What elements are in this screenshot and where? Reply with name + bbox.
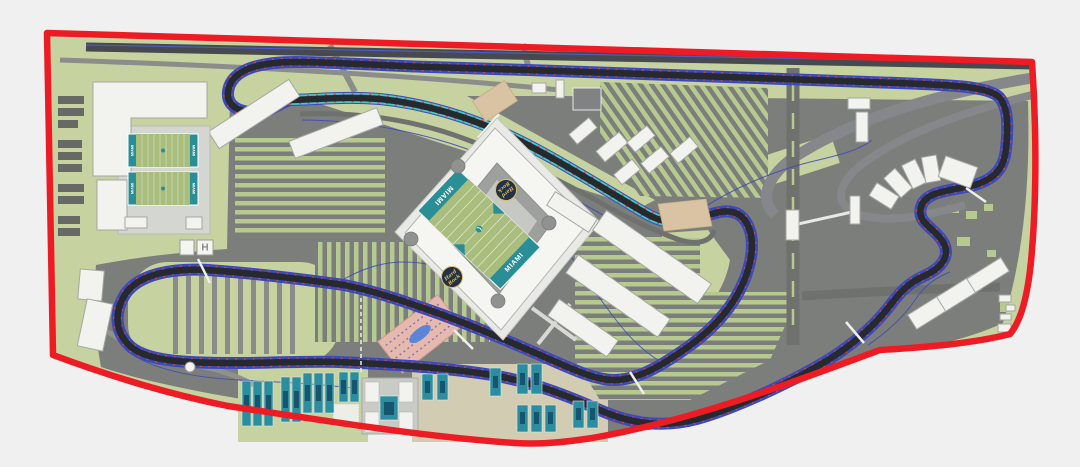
- building: [848, 98, 870, 109]
- training-facility: MIAMI MIAMI MIAMI MIAMI: [93, 82, 210, 234]
- building: [556, 80, 564, 98]
- helipad: H: [180, 240, 213, 255]
- building: [532, 83, 546, 93]
- circuit-site-map: MIAMI MIAMI Hard Rock Hard Rock: [0, 0, 1080, 467]
- end-zone-label: MIAMI: [192, 183, 196, 194]
- site-map-stage: MIAMI MIAMI Hard Rock Hard Rock: [0, 0, 1080, 467]
- facility-annex: [97, 180, 127, 230]
- facility-annex: [186, 217, 202, 229]
- practice-field: MIAMI MIAMI: [128, 172, 198, 205]
- building: [999, 295, 1011, 302]
- building: [1006, 305, 1015, 311]
- building: [1000, 314, 1011, 320]
- infield-parking: [170, 276, 298, 354]
- utility-compound: [573, 88, 601, 110]
- practice-field: MIAMI MIAMI: [128, 134, 198, 167]
- end-zone-label: MIAMI: [192, 145, 196, 156]
- roundabout: [185, 362, 195, 372]
- facility-annex: [125, 217, 147, 228]
- helipad-label: H: [201, 243, 208, 254]
- end-zone-label: MIAMI: [131, 145, 135, 156]
- building: [856, 112, 868, 142]
- grandstand: [78, 269, 105, 301]
- end-zone-label: MIAMI: [131, 183, 135, 194]
